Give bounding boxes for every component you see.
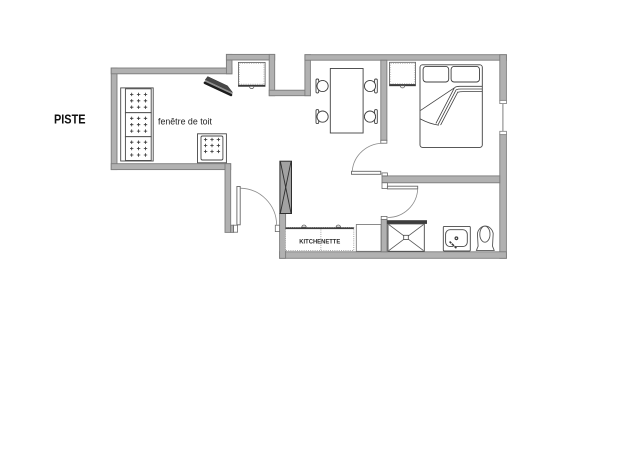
svg-text:PISTE: PISTE	[54, 111, 86, 126]
svg-text:fenêtre de toit: fenêtre de toit	[158, 116, 212, 127]
svg-text:KITCHENETTE: KITCHENETTE	[299, 238, 340, 245]
